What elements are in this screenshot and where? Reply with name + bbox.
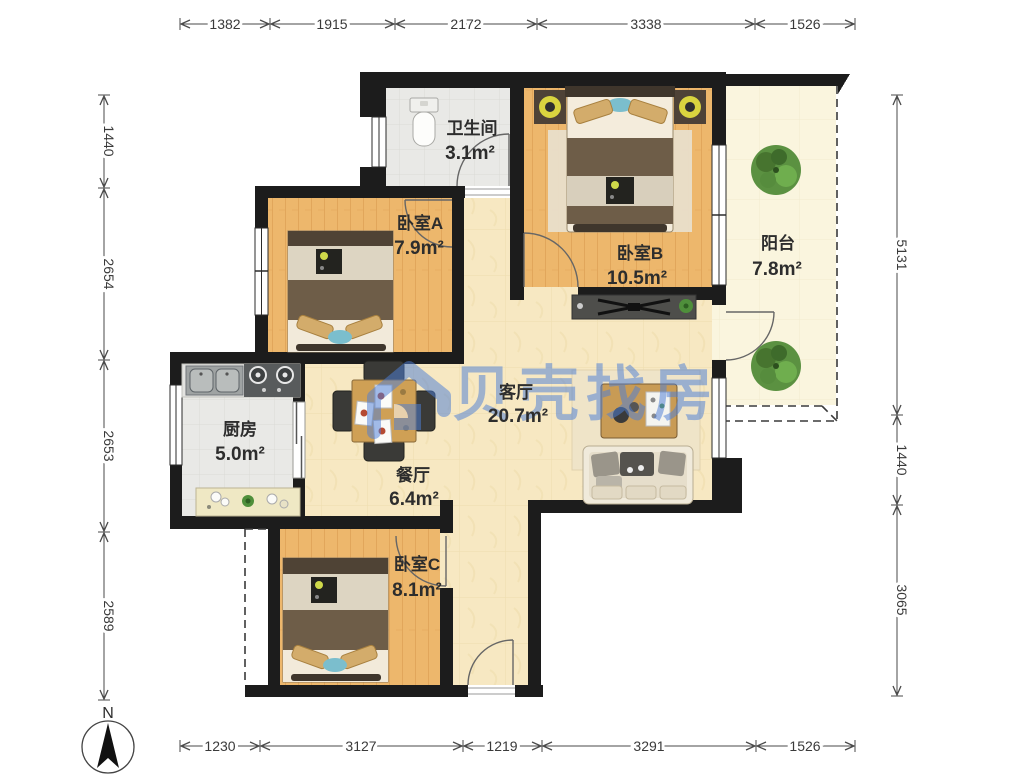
room-area-label: 7.9m² <box>394 238 444 259</box>
room-name-label: 厨房 <box>223 419 257 439</box>
room-area-label: 5.0m² <box>215 444 265 465</box>
compass: N <box>82 705 134 773</box>
dimension-label: 5131 <box>894 239 910 270</box>
room-name-label: 卧室A <box>397 213 443 233</box>
floorplan-svg: 贝壳找房 卫生间 3.1m² 卧室A 7.9m² 卧室B 10.5m² 阳台 7… <box>0 0 1009 780</box>
dimension-label: 1526 <box>789 738 820 754</box>
room-name-label: 客厅 <box>498 382 533 402</box>
wall <box>726 74 838 86</box>
wall <box>170 352 464 364</box>
plant-icon <box>751 145 801 195</box>
bedroom-b-door-gap <box>524 287 578 300</box>
sink-icon <box>186 366 243 395</box>
room-name-label: 卧室C <box>394 554 440 574</box>
dimension-label: 3338 <box>630 16 661 32</box>
dimension-label: 2653 <box>101 430 117 461</box>
wall <box>512 287 524 300</box>
bedroom-a-window <box>255 228 268 315</box>
compass-north-label: N <box>102 705 114 722</box>
dimension-label: 2654 <box>101 258 117 289</box>
wall <box>440 588 453 685</box>
dimension-label: 1915 <box>316 16 347 32</box>
wall <box>170 465 182 516</box>
shaft-dashed-edge <box>245 529 268 685</box>
wall <box>712 72 726 145</box>
kitchen-window <box>170 385 182 465</box>
dimension-label: 1440 <box>101 125 117 156</box>
dimension-label: 1219 <box>486 738 517 754</box>
wall <box>360 72 386 117</box>
room-name-label: 餐厅 <box>396 465 430 485</box>
wall <box>452 198 464 364</box>
bedroom-b-bed-icon <box>534 86 706 232</box>
wall <box>245 685 468 697</box>
dimension-label: 1440 <box>894 444 910 475</box>
wall <box>170 516 453 529</box>
room-area-label: 7.8m² <box>752 259 802 280</box>
room-area-label: 10.5m² <box>607 268 667 289</box>
room-area-label: 8.1m² <box>392 580 442 601</box>
dimension-label: 1526 <box>789 16 820 32</box>
kitchen-sliding-door <box>293 402 305 478</box>
room-name-label: 卫生间 <box>447 118 498 138</box>
room-area-label: 20.7m² <box>488 406 548 427</box>
wall <box>515 685 543 697</box>
plant-icon <box>751 341 801 391</box>
wall <box>170 352 182 385</box>
hall-floor <box>453 496 528 685</box>
tv-console-icon <box>572 295 696 319</box>
room-name-label: 阳台 <box>761 233 795 253</box>
bathroom-window <box>372 117 386 167</box>
corridor-floor <box>464 196 512 516</box>
wall <box>268 516 280 697</box>
wall <box>255 186 268 228</box>
room-area-label: 3.1m² <box>445 143 495 164</box>
wall <box>528 513 541 685</box>
toilet-icon <box>410 98 438 146</box>
kitchen-counter-icon <box>182 364 300 397</box>
sofa-icon <box>583 446 693 504</box>
room-area-label: 6.4m² <box>389 489 439 510</box>
wall <box>452 186 464 198</box>
dimension-label: 1230 <box>204 738 235 754</box>
bedroom-b-balcony-window <box>712 145 726 285</box>
wall <box>838 74 850 94</box>
bedroom-a-bed-icon <box>288 231 393 352</box>
bedroom-c-bed-icon <box>283 558 388 682</box>
dimension-label: 2589 <box>101 600 117 631</box>
dimension-label: 1382 <box>209 16 240 32</box>
wall <box>255 186 405 198</box>
dimension-label: 3127 <box>345 738 376 754</box>
wall <box>712 285 726 305</box>
room-name-label: 卧室B <box>617 243 663 263</box>
balcony-dashed-inner <box>726 406 837 421</box>
dimension-label: 3291 <box>633 738 664 754</box>
wall <box>510 72 524 300</box>
dimension-label: 2172 <box>450 16 481 32</box>
kitchen-lower-counter-icon <box>196 488 300 516</box>
balcony-door-gap <box>712 305 726 360</box>
stove-icon <box>244 364 300 397</box>
dimension-label: 3065 <box>894 584 910 615</box>
wall <box>360 72 726 88</box>
floorplan-page: 贝壳找房 卫生间 3.1m² 卧室A 7.9m² 卧室B 10.5m² 阳台 7… <box>0 0 1009 780</box>
